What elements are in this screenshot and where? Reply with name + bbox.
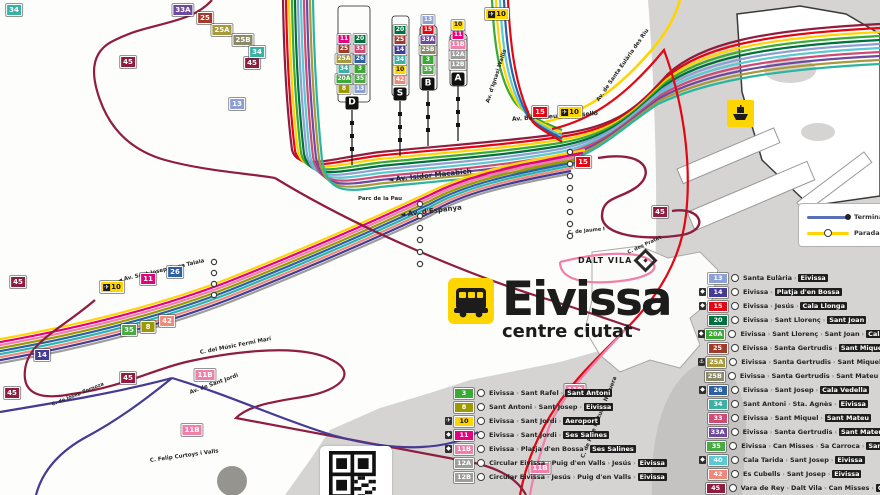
route-legend-bottom: 3Eivissa›Sant Rafel›Sant Antoni8Sant Ant… <box>443 386 673 484</box>
platform-B: B <box>422 78 435 91</box>
bus-stop <box>211 259 216 264</box>
bus-stop <box>567 161 572 166</box>
terminal-dot-icon <box>845 214 851 220</box>
route-badge-34: 34 <box>249 46 265 58</box>
legend-row-35: 35Eivissa›Can Misses›Sa Carroca›Sant Jor… <box>697 439 880 453</box>
route-badge-26: 26 <box>167 266 183 278</box>
stack-badge-25: 25 <box>338 44 351 54</box>
plane-icon: ✈ <box>443 417 454 425</box>
route-badge-42: 42 <box>159 315 175 327</box>
legend-route-text: Eivissa›Platja d'en Bossa <box>743 288 842 296</box>
legend-badge-33: 33 <box>708 413 728 424</box>
legend-route-text: Eivissa›Sant Jordi›Aeroport <box>489 417 600 425</box>
bus-stop <box>211 270 216 275</box>
legend-route-text: Eivissa›Sant Llorenç›Sant Joan <box>743 316 866 324</box>
legend-row-25B: 25BEivissa›Santa Gertrudis›Sant Mateu›Sa… <box>697 369 880 383</box>
legend-row-11B: ◆11BEivissa›Platja d'en Bossa›Ses Saline… <box>443 442 673 456</box>
route-badge-10: ✈10 <box>485 8 509 20</box>
stack-badge-35: 35 <box>354 74 367 84</box>
stack-badge-10: 10 <box>394 65 407 75</box>
stop-circle-icon <box>731 302 739 310</box>
stack-badge-34: 34 <box>338 64 351 74</box>
legend-row-40: ◆40Cala Tarida›Sant Josep›Eivissa <box>697 453 880 467</box>
port-ferry-icon <box>727 100 754 127</box>
legend-route-text: Eivissa›Jesús›Cala Llonga <box>743 302 847 310</box>
legend-badge-42: 42 <box>708 469 728 480</box>
route-45 <box>94 0 275 178</box>
beach-icon: ◆ <box>697 386 708 394</box>
dalt-vila-text: DALT VILA <box>578 256 632 265</box>
stack-badge-25A: 25A <box>336 54 353 64</box>
legend-route-text: Santa Eulària›Eivissa <box>743 274 828 282</box>
legend-badge-12A: 12A <box>454 458 474 469</box>
legend-route-text: Sant Antoni›Sta. Agnès›Eivissa <box>743 400 868 408</box>
legend-row-3: 3Eivissa›Sant Rafel›Sant Antoni <box>443 386 673 400</box>
stack-badge-11B: 11B <box>450 40 467 50</box>
legend-badge-33A: 33A <box>708 427 728 438</box>
route-badge-11B: 11B <box>194 369 215 381</box>
stack-badge-10: 10 <box>452 20 465 30</box>
stack-badge-15: 15 <box>422 25 435 35</box>
stop-circle-icon <box>477 459 485 467</box>
stop-circle-icon <box>731 470 739 478</box>
route-badge-10: ✈10 <box>100 281 124 293</box>
route-badge-45: 45 <box>10 276 26 288</box>
stop-circle-icon <box>477 431 485 439</box>
eivissa-bus-map: Eivissa centre ciutat DALT VILA Terminal… <box>0 0 880 495</box>
dalt-vila-label: DALT VILA <box>578 252 654 269</box>
legend-route-text: Eivissa›Santa Gertrudis›Sant Miquel <box>743 344 880 352</box>
stop-circle-icon <box>477 445 485 453</box>
stack-badge-34: 34 <box>394 55 407 65</box>
legend-badge-11: 11 <box>454 430 474 441</box>
legend-badge-45: 45 <box>706 483 726 494</box>
stack-badge-12A: 12A <box>450 50 467 60</box>
stack-badge-26: 26 <box>354 54 367 64</box>
legend-badge-20A: 20A <box>705 329 725 340</box>
route-badge-45: 45 <box>652 206 668 218</box>
legend-route-text: Eivissa›Sant Llorenç›Sant Joan›Cala Port… <box>740 330 880 338</box>
bus-stop <box>567 173 572 178</box>
symbols-legend-box: Terminal Parada <box>798 203 880 247</box>
stack-badge-8: 8 <box>338 84 351 94</box>
bus-stop <box>567 149 572 154</box>
legend-badge-40: 40 <box>708 455 728 466</box>
stack-badge-12B: 12B <box>450 60 467 70</box>
legend-row-11: ◆11Eivissa›Sant Jordi›Ses Salines <box>443 428 673 442</box>
legend-badge-25A: 25A <box>706 357 726 368</box>
bus-stop <box>567 209 572 214</box>
bus-stop <box>417 237 422 242</box>
legend-row-10: ✈10Eivissa›Sant Jordi›Aeroport <box>443 414 673 428</box>
legend-badge-25B: 25B <box>705 371 725 382</box>
legend-row-8: 8Sant Antoni›Sant Josep›Eivissa <box>443 400 673 414</box>
route-badge-11: 11 <box>140 273 156 285</box>
legend-badge-12B: 12B <box>454 472 474 483</box>
route-badge-15: 15 <box>532 106 548 118</box>
beach-icon: ◆ <box>697 456 708 464</box>
dalt-vila-diamond-icon <box>634 248 658 272</box>
legend-badge-8: 8 <box>454 402 474 413</box>
route-badge-15: 15 <box>575 156 591 168</box>
legend-route-text: Eivissa›Sant Jordi›Ses Salines <box>489 431 609 439</box>
port-icon: ⚓ <box>697 358 706 366</box>
bus-stop <box>567 185 572 190</box>
stack-badge-11: 11 <box>338 34 351 44</box>
route-badge-13: 13 <box>229 98 245 110</box>
stop-circle-icon <box>731 456 739 464</box>
beach-icon: ◆ <box>697 288 708 296</box>
stop-circle-icon <box>728 372 736 380</box>
legend-route-text: Eivissa›Sant Rafel›Sant Antoni <box>489 389 612 397</box>
stop-circle-icon <box>729 442 737 450</box>
legend-row-34: 34Sant Antoni›Sta. Agnès›Eivissa <box>697 397 880 411</box>
route-badge-8: 8 <box>141 321 156 333</box>
bus-stop <box>417 225 422 230</box>
legend-terminal-row: Terminal <box>807 209 880 225</box>
bus-stop <box>211 292 216 297</box>
beach-icon: ◆ <box>443 431 454 439</box>
legend-route-text: Eivissa›Santa Gertrudis›Sant Miquel›Port <box>741 358 880 366</box>
stack-badge-42: 42 <box>394 75 407 85</box>
legend-badge-10: 10 <box>454 416 474 427</box>
bus-stop <box>567 221 572 226</box>
stop-circle-icon <box>731 386 739 394</box>
legend-badge-25: 25 <box>708 343 728 354</box>
street-label: Parc de la Pau <box>358 196 402 202</box>
route-badge-11B: 11B <box>181 424 202 436</box>
legend-badge-20: 20 <box>708 315 728 326</box>
legend-row-14: ◆14Eivissa›Platja d'en Bossa <box>697 285 880 299</box>
stack-badge-13: 13 <box>422 15 435 25</box>
legend-route-text: Cala Tarida›Sant Josep›Eivissa <box>743 456 865 464</box>
platform-S: S <box>394 88 407 101</box>
stop-circle-icon <box>731 400 739 408</box>
legend-row-25A: ⚓25AEivissa›Santa Gertrudis›Sant Miquel›… <box>697 355 880 369</box>
legend-route-text: Eivissa›Can Misses›Sa Carroca›Sant Jordi <box>741 442 880 450</box>
legend-row-15: ◆15Eivissa›Jesús›Cala Llonga <box>697 299 880 313</box>
legend-route-text: Eivissa›Sant Miquel›Sant Mateu <box>743 414 871 422</box>
platform-A: A <box>452 73 465 86</box>
stack-badge-3: 3 <box>354 64 367 74</box>
route-legend-right: 13Santa Eulària›Eivissa◆14Eivissa›Platja… <box>697 271 880 495</box>
stack-badge-13: 13 <box>354 84 367 94</box>
page-title: Eivissa <box>502 278 671 322</box>
stop-circle-icon <box>477 417 485 425</box>
route-badge-45: 45 <box>120 56 136 68</box>
legend-row-42: 42Es Cubells›Sant Josep›Eivissa <box>697 467 880 481</box>
legend-row-45: 45Vara de Rey›Dalt Vila›Can Misses›Cas S… <box>697 481 880 495</box>
legend-row-25: 25Eivissa›Santa Gertrudis›Sant Miquel <box>697 341 880 355</box>
stack-badge-14: 14 <box>394 45 407 55</box>
route-badge-25B: 25B <box>232 34 253 46</box>
stop-circle-icon <box>731 414 739 422</box>
stack-badge-11: 11 <box>452 30 465 40</box>
legend-route-text: Eivissa›Sant Josep›Cala Vedella <box>743 386 869 394</box>
stop-circle-icon <box>729 358 737 366</box>
stop-circle-icon <box>477 473 485 481</box>
legend-badge-14: 14 <box>708 287 728 298</box>
stop-circle-icon <box>731 288 739 296</box>
route-badge-45: 45 <box>4 387 20 399</box>
legend-row-13: 13Santa Eulària›Eivissa <box>697 271 880 285</box>
stop-circle-icon <box>729 484 737 492</box>
legend-row-12A: 12ACircular Eivissa›Puig d'en Valls›Jesú… <box>443 456 673 470</box>
legend-badge-11B: 11B <box>454 444 474 455</box>
stop-circle-icon <box>728 330 736 338</box>
stack-badge-35: 35 <box>422 65 435 75</box>
stack-badge-3: 3 <box>422 55 435 65</box>
parada-stop-icon <box>824 229 832 237</box>
terminal-line-sample <box>807 216 849 219</box>
stop-circle-icon <box>731 316 739 324</box>
legend-row-20: 20Eivissa›Sant Llorenç›Sant Joan <box>697 313 880 327</box>
legend-row-12B: 12BCircular Eivissa›Jesús›Puig d'en Vall… <box>443 470 673 484</box>
parada-label: Parada <box>854 229 880 237</box>
legend-route-text: Eivissa›Santa Gertrudis›Sant Mateu›Santa… <box>740 372 880 380</box>
beach-icon: ◆ <box>697 330 705 338</box>
route-badge-45: 45 <box>244 57 260 69</box>
roundabout <box>217 466 247 495</box>
legend-row-33: 33Eivissa›Sant Miquel›Sant Mateu <box>697 411 880 425</box>
legend-route-text: Es Cubells›Sant Josep›Eivissa <box>743 470 861 478</box>
route-badge-35: 35 <box>121 324 137 336</box>
stack-badge-25B: 25B <box>420 45 437 55</box>
legend-badge-35: 35 <box>706 441 726 452</box>
route-badge-33A: 33A <box>172 4 193 16</box>
map-title-block: Eivissa centre ciutat <box>448 278 671 340</box>
stack-badge-20A: 20A <box>336 74 353 84</box>
qr-code <box>320 446 392 495</box>
bus-stop <box>417 201 422 206</box>
legend-route-text: Circular Eivissa›Puig d'en Valls›Jesús›E… <box>489 459 667 467</box>
route-badge-34: 34 <box>6 4 22 16</box>
beach-icon: ◆ <box>697 302 708 310</box>
stack-badge-20: 20 <box>354 34 367 44</box>
bus-stop <box>211 281 216 286</box>
route-badge-25: 25 <box>197 12 213 24</box>
stop-circle-icon <box>731 274 739 282</box>
route-14 <box>0 378 172 495</box>
platform-D: D <box>346 97 359 110</box>
stack-badge-25: 25 <box>394 35 407 45</box>
stop-circle-icon <box>731 344 739 352</box>
stack-badge-33A: 33A <box>420 35 437 45</box>
stop-circle-icon <box>477 403 485 411</box>
stop-circle-icon <box>477 389 485 397</box>
bus-stop <box>567 197 572 202</box>
stack-badge-20: 20 <box>394 25 407 35</box>
legend-row-20A: ◆20AEivissa›Sant Llorenç›Sant Joan›Cala … <box>697 327 880 341</box>
legend-route-text: Eivissa›Santa Gertrudis›Sant Mateu <box>743 428 880 436</box>
parada-line-sample <box>807 232 849 235</box>
legend-route-text: Sant Antoni›Sant Josep›Eivissa <box>489 403 613 411</box>
legend-route-text: Vara de Rey›Dalt Vila›Can Misses›Cas Ser… <box>741 484 880 492</box>
legend-badge-3: 3 <box>454 388 474 399</box>
legend-badge-15: 15 <box>708 301 728 312</box>
legend-row-26: ◆26Eivissa›Sant Josep›Cala Vedella <box>697 383 880 397</box>
legend-badge-26: 26 <box>708 385 728 396</box>
legend-badge-13: 13 <box>708 273 728 284</box>
legend-parada-row: Parada <box>807 225 880 241</box>
route-badge-14: 14 <box>34 349 50 361</box>
legend-badge-34: 34 <box>708 399 728 410</box>
stop-circle-icon <box>731 428 739 436</box>
route-badge-45: 45 <box>120 372 136 384</box>
bus-stop <box>417 249 422 254</box>
legend-row-33A: 33AEivissa›Santa Gertrudis›Sant Mateu <box>697 425 880 439</box>
legend-route-text: Eivissa›Platja d'en Bossa›Ses Salines <box>489 445 636 453</box>
legend-route-text: Circular Eivissa›Jesús›Puig d'en Valls›E… <box>489 473 667 481</box>
terminal-label: Terminal <box>854 213 880 221</box>
bus-icon <box>448 278 494 324</box>
stack-badge-33: 33 <box>354 44 367 54</box>
route-badge-25A: 25A <box>211 24 232 36</box>
beach-icon: ◆ <box>443 445 454 453</box>
route-badge-10: ✈10 <box>558 106 582 118</box>
bus-stop <box>417 261 422 266</box>
